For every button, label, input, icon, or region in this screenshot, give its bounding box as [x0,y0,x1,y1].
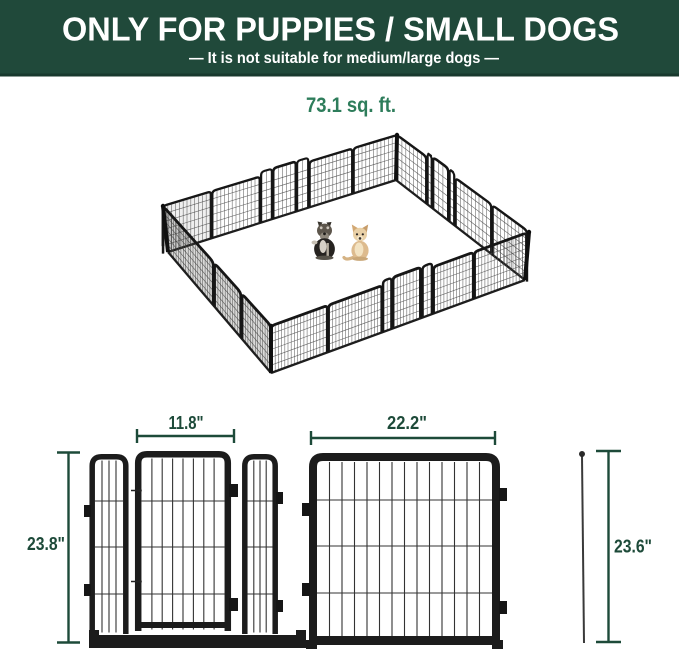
svg-text:73.1 sq. ft.: 73.1 sq. ft. [306,94,396,117]
svg-text:ONLY FOR PUPPIES / SMALL DOGS: ONLY FOR PUPPIES / SMALL DOGS [62,11,619,48]
svg-text:— It is not suitable for mediu: — It is not suitable for medium/large do… [189,50,499,67]
svg-text:23.8": 23.8" [27,534,65,554]
svg-text:23.6": 23.6" [614,537,652,557]
svg-text:11.8": 11.8" [169,413,204,433]
svg-text:22.2": 22.2" [387,413,427,433]
